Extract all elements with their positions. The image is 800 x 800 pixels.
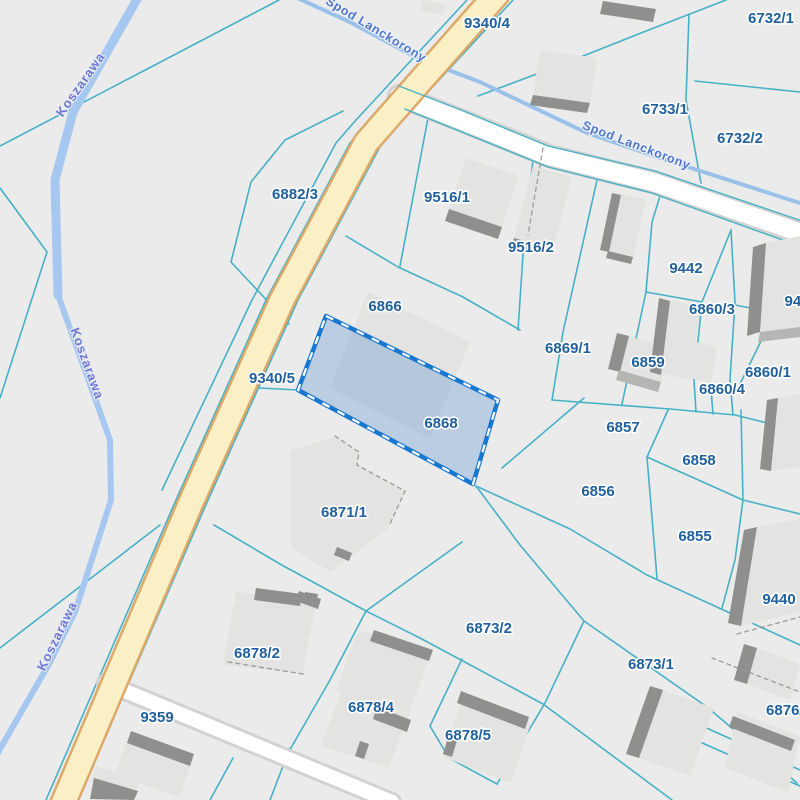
building-footprint [760, 236, 800, 332]
river-label-1: Koszarawa [67, 326, 107, 402]
parcel-label-6859: 6859 [631, 354, 664, 371]
parcel-label-6866: 6866 [368, 298, 401, 315]
map-viewport[interactable]: 9340/46732/16733/16732/26882/39516/19516… [0, 0, 800, 800]
parcel-boundary-line [647, 457, 657, 578]
parcel-boundary-line [702, 230, 731, 302]
parcel-label-6858: 6858 [682, 452, 715, 469]
parcel-label-6876-2: 6876/2 [766, 702, 800, 719]
river-label-0: Koszarawa [53, 49, 108, 119]
parcel-label-944: 944 [784, 293, 800, 310]
parcel-label-6732-1: 6732/1 [748, 10, 794, 27]
parcel-label-9516-2: 9516/2 [508, 239, 554, 256]
parcel-label-6732-2: 6732/2 [717, 130, 763, 147]
parcel-label-6860-1: 6860/1 [745, 364, 791, 381]
building-footprint [600, 1, 656, 22]
parcel-label-6868: 6868 [424, 415, 457, 432]
parcel-label-6878-5: 6878/5 [445, 727, 491, 744]
building-footprint [514, 166, 572, 249]
building-footprint [420, 0, 446, 15]
parcel-label-6873-2: 6873/2 [466, 620, 512, 637]
parcel-label-6878-2: 6878/2 [234, 645, 280, 662]
parcel-boundary-line [743, 500, 800, 514]
parcel-label-6860-4: 6860/4 [699, 381, 746, 398]
koszarawa-upper-waterline [55, 0, 140, 295]
parcel-label-9442: 9442 [669, 260, 702, 277]
parcel-boundary-line [502, 398, 584, 468]
street-label-0: Spod Lanckorony [323, 0, 428, 65]
building-footprint [747, 648, 800, 700]
parcel-label-6855: 6855 [678, 528, 711, 545]
parcel-label-6857: 6857 [606, 419, 639, 436]
parcel-boundary-line [647, 410, 668, 457]
parcel-label-9340-5: 9340/5 [249, 370, 295, 387]
parcel-label-6860-3: 6860/3 [689, 301, 735, 318]
parcel-label-6873-1: 6873/1 [628, 656, 674, 673]
parcel-label-9440: 9440 [762, 591, 795, 608]
parcel-label-6882-3: 6882/3 [272, 186, 318, 203]
parcel-boundary-line [0, 0, 279, 146]
parcel-boundary-line [259, 388, 298, 390]
parcel-boundary-line [0, 188, 47, 398]
parcel-label-9340-4: 9340/4 [464, 15, 511, 32]
parcel-boundary-line [695, 81, 800, 92]
building-footprint [533, 50, 597, 103]
parcel-label-6878-4: 6878/4 [348, 699, 395, 716]
parcel-boundary-line [366, 542, 462, 611]
river-label-2: Koszarawa [34, 599, 80, 673]
parcel-label-6733-1: 6733/1 [642, 101, 688, 118]
parcel-label-6871-1: 6871/1 [321, 504, 367, 521]
parcel-label-9359: 9359 [140, 709, 173, 726]
parcel-label-6869-1: 6869/1 [545, 340, 591, 357]
cadastral-map: 9340/46732/16733/16732/26882/39516/19516… [0, 0, 800, 800]
parcel-boundary-line [210, 758, 233, 800]
parcel-label-6856: 6856 [581, 483, 614, 500]
parcel-label-9516-1: 9516/1 [424, 189, 470, 206]
